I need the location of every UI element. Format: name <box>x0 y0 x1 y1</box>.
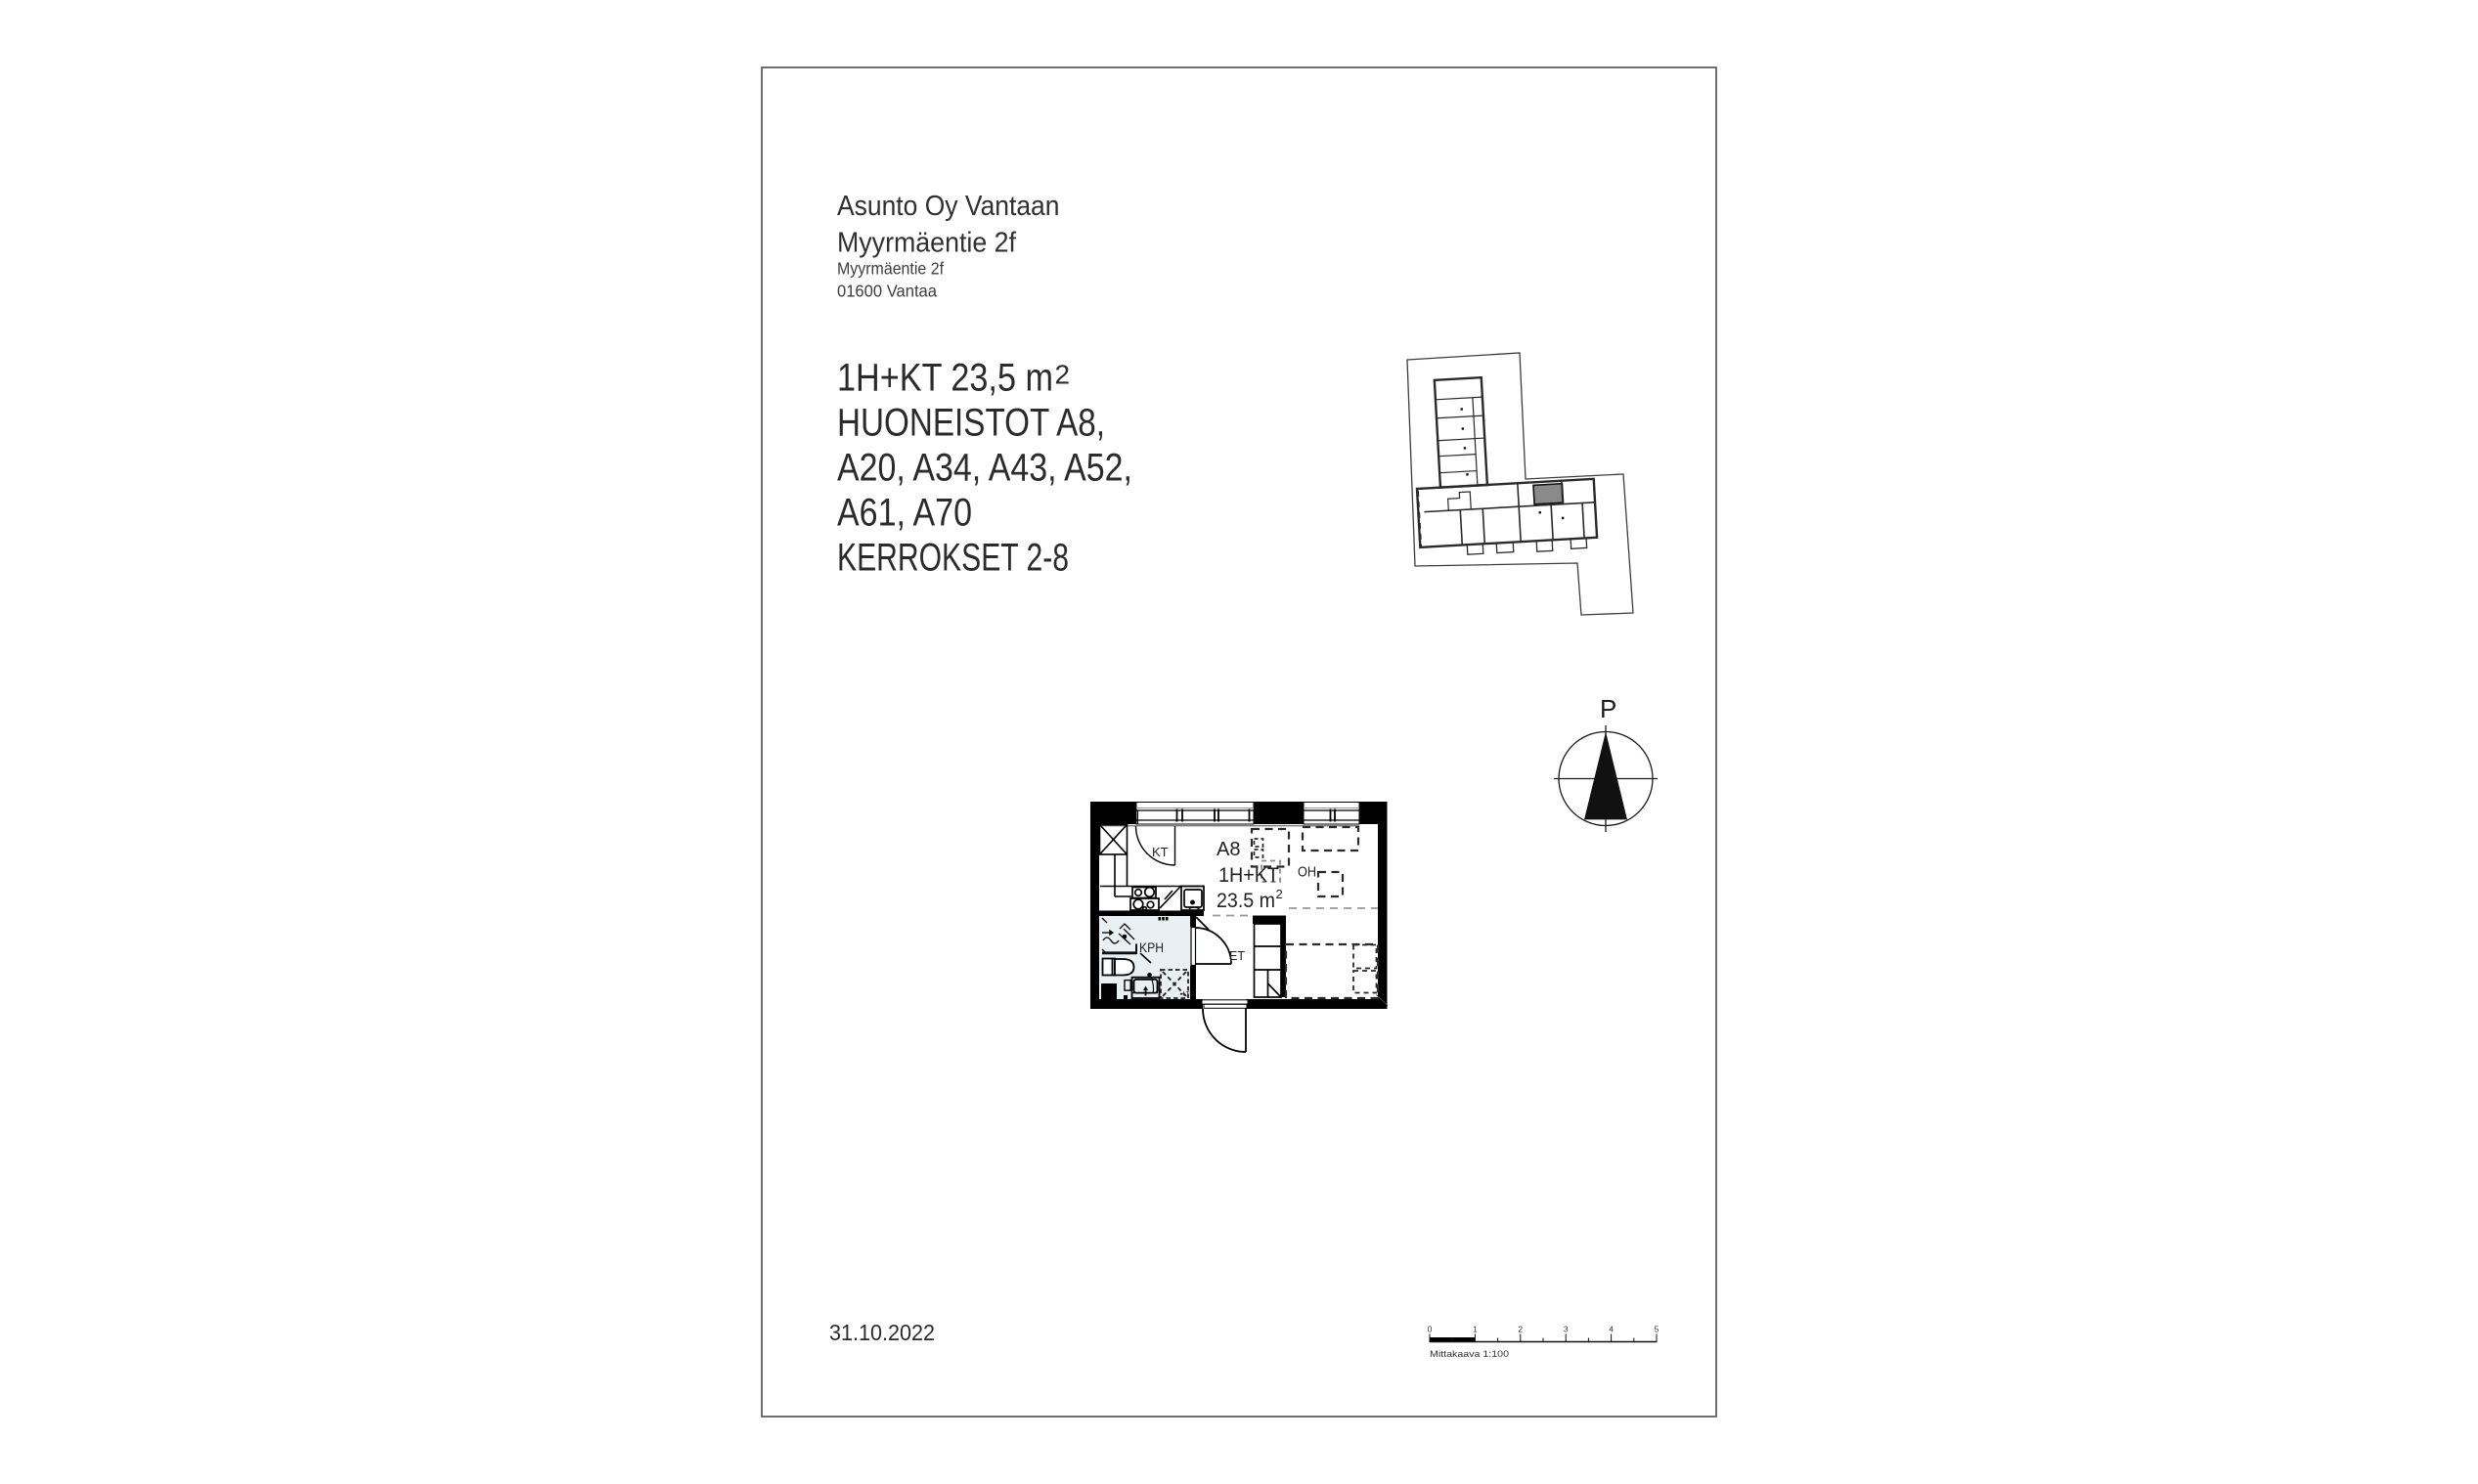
svg-text:01600 Vantaa: 01600 Vantaa <box>837 282 937 301</box>
svg-text:Myyrmäentie 2f: Myyrmäentie 2f <box>837 228 1017 259</box>
svg-text:1H+KT 23,5 m: 1H+KT 23,5 m <box>837 357 1053 400</box>
svg-text:2: 2 <box>1276 887 1283 901</box>
svg-text:OH: OH <box>1298 864 1316 881</box>
svg-text:0: 0 <box>1428 1325 1433 1334</box>
svg-text:1H+KT: 1H+KT <box>1218 864 1279 887</box>
svg-text:Myyrmäentie 2f: Myyrmäentie 2f <box>837 259 944 279</box>
svg-text:KERROKSET 2-8: KERROKSET 2-8 <box>837 537 1069 580</box>
svg-text:3: 3 <box>1564 1325 1569 1334</box>
svg-text:A20, A34, A43, A52,: A20, A34, A43, A52, <box>837 447 1132 490</box>
svg-text:31.10.2022: 31.10.2022 <box>829 1320 935 1345</box>
svg-text:Mittakaava 1:100: Mittakaava 1:100 <box>1430 1349 1509 1360</box>
svg-text:A61, A70: A61, A70 <box>837 492 972 535</box>
svg-text:5: 5 <box>1655 1325 1659 1334</box>
svg-text:HUONEISTOT A8,: HUONEISTOT A8, <box>837 402 1105 445</box>
svg-text:Asunto Oy Vantaan: Asunto Oy Vantaan <box>837 191 1060 222</box>
svg-text:P: P <box>1600 694 1616 723</box>
svg-text:23.5 m: 23.5 m <box>1217 890 1275 912</box>
svg-text:1: 1 <box>1473 1325 1478 1334</box>
svg-text:2: 2 <box>1055 360 1071 390</box>
svg-text:2: 2 <box>1518 1325 1523 1334</box>
svg-text:KPH: KPH <box>1139 939 1164 955</box>
svg-text:LTO: LTO <box>1183 991 1195 998</box>
svg-text:KT: KT <box>1152 845 1169 859</box>
svg-text:A8: A8 <box>1217 839 1240 860</box>
svg-text:ET: ET <box>1229 949 1245 963</box>
svg-text:4: 4 <box>1609 1325 1614 1334</box>
